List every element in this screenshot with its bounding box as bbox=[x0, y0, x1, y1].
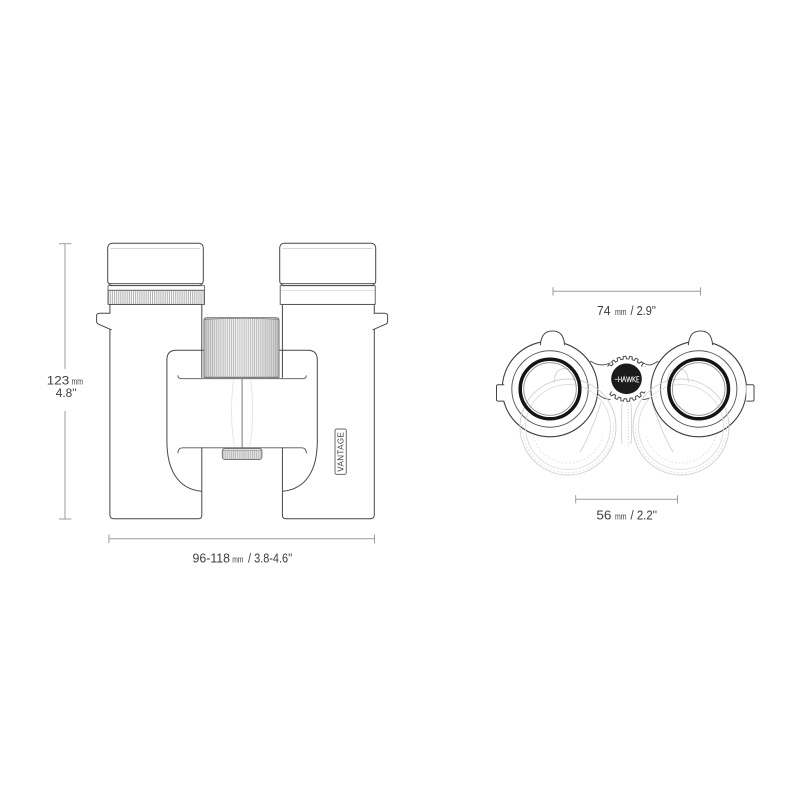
svg-text:/ 2.2'': / 2.2'' bbox=[631, 508, 658, 523]
svg-text:VANTAGE: VANTAGE bbox=[337, 432, 346, 472]
svg-text:74: 74 bbox=[597, 303, 611, 318]
svg-text:56: 56 bbox=[596, 508, 611, 523]
svg-text:mm: mm bbox=[232, 555, 243, 565]
svg-text:mm: mm bbox=[615, 512, 627, 522]
svg-text:96-118: 96-118 bbox=[193, 551, 231, 566]
svg-text:4.8'': 4.8'' bbox=[56, 386, 77, 400]
svg-text:/ 2.9'': / 2.9'' bbox=[631, 303, 657, 318]
svg-text:mm: mm bbox=[615, 307, 627, 317]
svg-text:/ 3.8-4.6'': / 3.8-4.6'' bbox=[248, 551, 292, 566]
